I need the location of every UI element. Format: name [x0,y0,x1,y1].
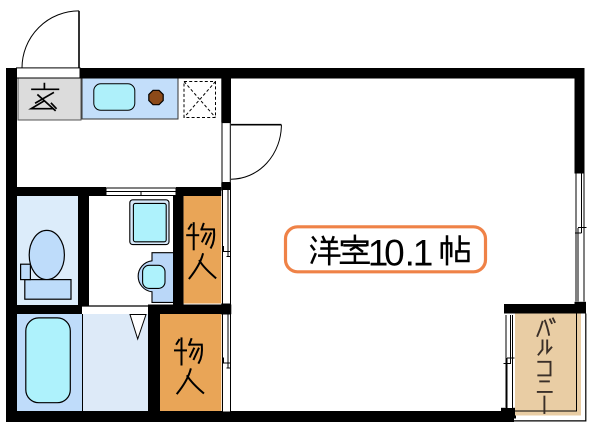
svg-text:10.1: 10.1 [368,233,434,274]
